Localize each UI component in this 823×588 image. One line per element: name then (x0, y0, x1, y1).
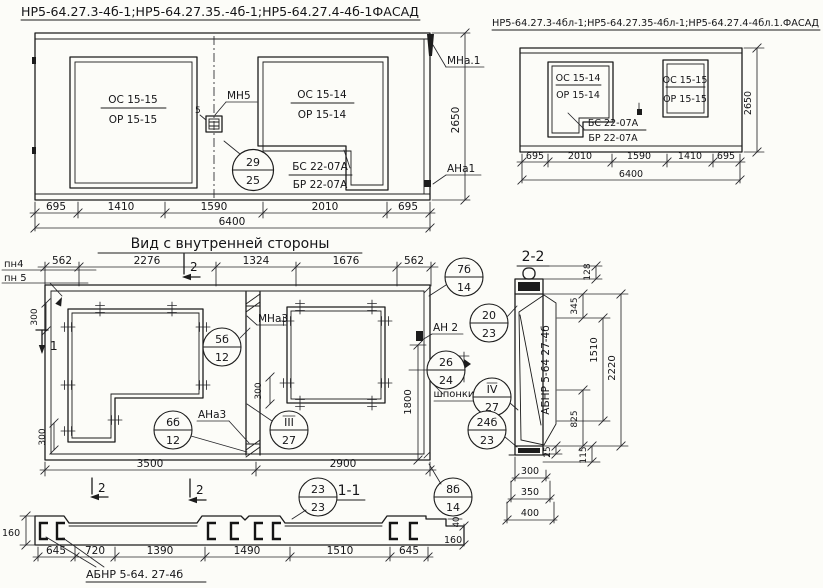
svg-text:12: 12 (166, 434, 180, 447)
dim-chain-bottom-right-facade: 695 2010 1590 1410 695 6400 (517, 151, 745, 184)
svg-text:1510: 1510 (589, 337, 600, 362)
corner-unit-mark: БР 22-07А (293, 179, 348, 191)
svg-text:300: 300 (521, 466, 539, 477)
svg-text:12: 12 (215, 351, 229, 364)
svg-text:2: 2 (196, 483, 204, 497)
svg-text:160: 160 (2, 528, 20, 539)
svg-text:1: 1 (50, 339, 58, 353)
svg-text:300: 300 (38, 428, 48, 445)
mn5-detail: МН5 5 (195, 90, 257, 132)
dim-300-bottom-left: 300 (38, 419, 58, 454)
svg-text:1510: 1510 (327, 545, 354, 557)
balloon-23-23: 23 23 (292, 478, 337, 519)
svg-text:ОР 15-14: ОР 15-14 (556, 90, 600, 101)
svg-text:562: 562 (404, 255, 424, 267)
section-marker-2-slab: 2 (90, 478, 108, 500)
svg-text:2220: 2220 (607, 355, 618, 380)
dim-chain-bottom: 695 1410 1590 2010 695 6400 (30, 201, 435, 232)
anchor-mark (637, 103, 642, 115)
dim-300-mid: 300 (254, 373, 274, 408)
svg-text:562: 562 (52, 255, 72, 267)
mn5-callout: МН5 (227, 90, 251, 102)
unit-label-rotated: АБНР 5-64 27-4б (540, 325, 552, 414)
svg-text:БР 22-07А: БР 22-07А (588, 133, 638, 144)
dim-5: 5 (195, 106, 201, 116)
svg-text:40: 40 (452, 517, 462, 528)
balloon-top: 29 (246, 156, 260, 169)
window-mark: ОР 15-15 (109, 114, 157, 126)
svg-text:23: 23 (480, 434, 494, 447)
svg-text:23: 23 (311, 501, 325, 514)
balloon-24b-23: 24б 23 (468, 411, 517, 449)
svg-text:20: 20 (482, 309, 496, 322)
svg-text:8б: 8б (446, 483, 460, 496)
section-1-1: 1-1 23 23 8б 14 (2, 464, 472, 582)
svg-text:825: 825 (570, 410, 580, 427)
drawing-sheet: НР5-64.27.3-4б-1;НР5-64.27.35.-4б-1;НР5-… (0, 0, 823, 588)
svg-text:АНа3: АНа3 (198, 409, 226, 421)
svg-text:ОС 15-14: ОС 15-14 (556, 73, 601, 84)
balloon-7b-14: 7б 14 (429, 258, 483, 296)
svg-text:1676: 1676 (333, 255, 360, 267)
svg-text:695: 695 (717, 151, 735, 162)
svg-text:300: 300 (30, 308, 40, 325)
svg-text:345: 345 (570, 297, 580, 314)
svg-text:2: 2 (98, 481, 106, 495)
dim-40: 40 (448, 517, 462, 528)
svg-text:БС 22-07А: БС 22-07А (588, 118, 639, 129)
section-1-1-title: 1-1 (338, 483, 361, 499)
svg-text:695: 695 (526, 151, 544, 162)
window-mark: ОС 15-15 (108, 94, 157, 106)
dim-1800: 1800 (403, 341, 426, 464)
balloon-8b-14: 8б 14 (429, 464, 472, 516)
balloon-29-25: 29 25 (224, 141, 274, 191)
section-2-2: 2-2 АБНР 5-64 27-4б (503, 249, 628, 524)
svg-text:МНа.1: МНа.1 (447, 55, 480, 67)
svg-text:1590: 1590 (627, 151, 651, 162)
svg-text:2010: 2010 (568, 151, 592, 162)
svg-text:АНа1: АНа1 (447, 163, 475, 175)
svg-text:695: 695 (46, 201, 66, 213)
window-mark: ОР 15-14 (298, 109, 347, 121)
dim-160-left: 160 (2, 512, 36, 549)
svg-text:5б: 5б (215, 333, 229, 346)
facade-left-window-2: ОС 15-14 ОР 15-14 БС 22-07А БР 22-07А (258, 57, 388, 191)
svg-text:25: 25 (543, 446, 553, 457)
svg-text:115: 115 (579, 446, 589, 463)
facade-right-view: НР5-64.27.3-4бл-1;НР5-64.27.35-4бл-1;НР5… (492, 18, 820, 184)
svg-text:14: 14 (457, 281, 471, 294)
svg-text:7б: 7б (457, 263, 471, 276)
svg-text:2010: 2010 (312, 201, 339, 213)
callout-mna1: МНа.1 (433, 45, 484, 67)
dim-total: 6400 (219, 216, 246, 228)
svg-text:26: 26 (439, 356, 453, 369)
dim-chain-bottom-inner: 3500 2900 (40, 458, 436, 476)
svg-text:14: 14 (446, 501, 460, 514)
corner-unit-mark: БС 22-07А (292, 161, 348, 173)
svg-text:1800: 1800 (403, 389, 414, 414)
svg-text:3500: 3500 (137, 458, 164, 470)
callout-ana1: АНа1 (424, 163, 481, 187)
facade-right-title: НР5-64.27.3-4бл-1;НР5-64.27.35-4бл-1;НР5… (492, 18, 819, 29)
svg-text:пн4: пн4 (4, 259, 23, 270)
section-2-2-body: АБНР 5-64 27-4б (509, 268, 556, 455)
svg-text:400: 400 (521, 508, 539, 519)
svg-text:1390: 1390 (147, 545, 174, 557)
callout-an2: АН 2 (416, 322, 463, 341)
section-marker-1-left: 1 (36, 330, 58, 354)
svg-text:III: III (284, 416, 294, 429)
svg-text:2650: 2650 (450, 107, 462, 134)
balloon-26-24: 26 24 (409, 351, 465, 394)
unit-label-1-1: АБНР 5-64. 27-4б (46, 537, 206, 582)
inner-view-title: Вид с внутренней стороны (131, 236, 330, 252)
svg-text:2: 2 (190, 260, 198, 274)
svg-text:1410: 1410 (678, 151, 702, 162)
svg-text:27: 27 (282, 434, 296, 447)
svg-text:1324: 1324 (243, 255, 270, 267)
svg-text:АН 2: АН 2 (433, 322, 458, 334)
svg-text:128: 128 (583, 263, 593, 280)
inner-view: Вид с внутренней стороны пн4 пн 5 562 22… (2, 236, 518, 503)
svg-text:1590: 1590 (201, 201, 228, 213)
labels-pn: пн4 пн 5 (2, 259, 96, 307)
svg-text:645: 645 (399, 545, 419, 557)
svg-text:1490: 1490 (234, 545, 261, 557)
svg-text:2900: 2900 (330, 458, 357, 470)
balloon-bottom: 25 (246, 174, 260, 187)
svg-text:6б: 6б (166, 416, 180, 429)
svg-text:IV: IV (487, 383, 498, 396)
svg-text:МНа3: МНа3 (258, 313, 288, 325)
svg-text:6400: 6400 (619, 169, 643, 180)
facade-right-window-2: ОС 15-15 ОР 15-15 (663, 60, 708, 117)
svg-text:23: 23 (311, 483, 325, 496)
facade-left-title: НР5-64.27.3-4б-1;НР5-64.27.35.-4б-1;НР5-… (21, 5, 419, 19)
svg-text:АБНР 5-64. 27-4б: АБНР 5-64. 27-4б (86, 568, 183, 581)
balloon-20-23: 20 23 (470, 304, 517, 342)
svg-text:ОР 15-15: ОР 15-15 (663, 94, 707, 105)
svg-text:2650: 2650 (743, 91, 754, 115)
facade-left-view: НР5-64.27.3-4б-1;НР5-64.27.35.-4б-1;НР5-… (21, 5, 484, 232)
inner-window-right (280, 300, 392, 410)
section-marker-2-bottom: 2 (188, 479, 206, 503)
facade-left-window-1: ОС 15-15 ОР 15-15 (70, 57, 197, 188)
dim-chain-top-inner: 562 2276 1324 1676 562 (38, 255, 438, 286)
svg-text:ОС 15-15: ОС 15-15 (663, 75, 708, 86)
slab-profile (35, 516, 464, 545)
svg-text:пн 5: пн 5 (4, 273, 27, 284)
svg-text:1410: 1410 (108, 201, 135, 213)
section-2-2-title: 2-2 (522, 249, 545, 265)
svg-text:24б: 24б (477, 416, 498, 429)
svg-text:300: 300 (254, 382, 264, 399)
svg-text:23: 23 (482, 327, 496, 340)
balloon-IV-27: IV 27 (473, 378, 518, 416)
svg-text:350: 350 (521, 487, 539, 498)
callout-mna3: МНа3 (247, 313, 288, 325)
svg-text:160: 160 (444, 535, 462, 546)
blueprint-svg: НР5-64.27.3-4б-1;НР5-64.27.35.-4б-1;НР5-… (0, 0, 823, 588)
svg-text:695: 695 (398, 201, 418, 213)
callout-ana3: АНа3 (197, 409, 249, 443)
svg-text:24: 24 (439, 374, 453, 387)
section-2-2-width-dims: 300 350 400 (503, 457, 558, 524)
balloon-5b-12: 5б 12 (203, 328, 250, 366)
dim-height-2650-right: 2650 (743, 44, 764, 156)
window-mark: ОС 15-14 (297, 89, 347, 101)
svg-text:2276: 2276 (134, 255, 161, 267)
